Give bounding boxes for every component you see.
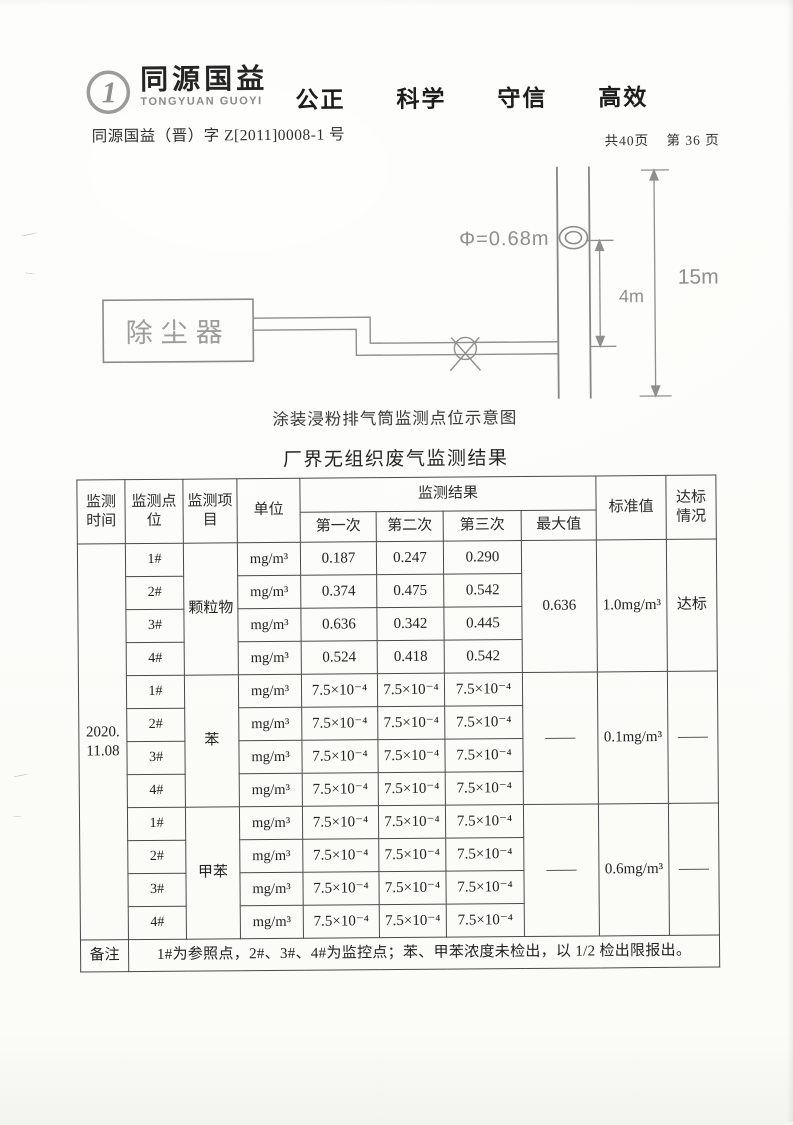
max-value-cell: ——	[522, 672, 598, 805]
duct-pipe	[253, 316, 558, 356]
stack-diameter-label: Φ=0.68m	[459, 228, 549, 251]
point-cell: 3#	[128, 873, 186, 906]
value-cell: 7.5×10⁻⁴	[302, 740, 378, 774]
page-total: 共40页	[605, 133, 650, 148]
monitoring-results-table: 监测时间 监测点位 监测项目 单位 监测结果 标准值 达标情况 第一次 第二次 …	[76, 475, 720, 973]
value-cell: 0.187	[300, 542, 376, 576]
point-cell: 4#	[126, 642, 184, 675]
header-point: 监测点位	[125, 479, 184, 543]
monitoring-date: 2020. 11.08	[77, 544, 128, 940]
scan-mark	[13, 816, 22, 818]
unit-cell: mg/m³	[238, 608, 301, 641]
svg-text:1: 1	[102, 76, 117, 109]
table-title: 厂界无组织废气监测结果	[0, 441, 792, 474]
port-height-label: 4m	[619, 286, 644, 306]
unit-cell: mg/m³	[239, 707, 302, 740]
value-cell: 7.5×10⁻⁴	[378, 739, 445, 773]
value-cell: 0.475	[377, 574, 444, 608]
value-cell: 7.5×10⁻⁴	[446, 904, 524, 938]
value-cell: 7.5×10⁻⁴	[302, 806, 378, 840]
diagram-caption: 涂装浸粉排气筒监测点位示意图	[272, 408, 517, 429]
company-logo-text: 同源国益 TONGYUAN GUOYI	[140, 65, 268, 108]
table-row: 2020. 11.08 1# 颗粒物 mg/m³ 0.187 0.247 0.2…	[77, 539, 716, 577]
note-text: 1#为参照点，2#、3#、4#为监控点；苯、甲苯浓度未检出，以 1/2 检出限报…	[128, 935, 719, 972]
company-name-cn: 同源国益	[140, 65, 268, 94]
value-cell: 7.5×10⁻⁴	[302, 707, 378, 741]
page-current: 第 36 页	[666, 132, 719, 147]
point-cell: 3#	[126, 609, 184, 642]
table-header-row-1: 监测时间 监测点位 监测项目 单位 监测结果 标准值 达标情况	[77, 475, 716, 514]
point-cell: 1#	[125, 543, 183, 576]
value-cell: 0.542	[444, 640, 522, 674]
standard-value-cell: 1.0mg/m³	[596, 539, 667, 672]
unit-cell: mg/m³	[239, 806, 302, 839]
point-cell: 4#	[127, 774, 185, 807]
header-max: 最大值	[521, 510, 596, 541]
header-unit: 单位	[237, 478, 301, 542]
slogan-4: 高效	[598, 78, 648, 112]
value-cell: 0.636	[301, 608, 377, 642]
item-benzene: 苯	[184, 675, 239, 807]
unit-cell: mg/m³	[240, 839, 303, 872]
slogan-row: 公正 科学 守信 高效	[295, 78, 648, 115]
stack-height-dimension	[638, 170, 672, 396]
note-label: 备注	[80, 940, 128, 972]
page-info: 共40页 第 36 页	[0, 128, 720, 154]
scan-mark	[14, 774, 28, 778]
value-cell: 0.342	[377, 607, 444, 641]
value-cell: 7.5×10⁻⁴	[446, 871, 524, 905]
value-cell: 0.290	[443, 541, 521, 575]
note-row: 备注 1#为参照点，2#、3#、4#为监控点；苯、甲苯浓度未检出，以 1/2 检…	[80, 935, 719, 972]
slogan-1: 公正	[295, 80, 345, 114]
unit-cell: mg/m³	[238, 674, 301, 707]
point-cell: 2#	[127, 708, 185, 741]
company-logo-icon: 1	[84, 68, 132, 116]
point-cell: 2#	[126, 576, 184, 609]
header-standard: 标准值	[596, 475, 667, 540]
value-cell: 7.5×10⁻⁴	[379, 838, 446, 872]
table-row: 1# 苯 mg/m³ 7.5×10⁻⁴ 7.5×10⁻⁴ 7.5×10⁻⁴ ——…	[78, 671, 717, 709]
value-cell: 7.5×10⁻⁴	[378, 805, 445, 839]
value-cell: 7.5×10⁻⁴	[378, 706, 445, 740]
standard-value-cell: 0.6mg/m³	[598, 803, 669, 936]
value-cell: 7.5×10⁻⁴	[446, 838, 524, 872]
point-cell: 4#	[128, 906, 186, 939]
max-value-cell: ——	[523, 804, 599, 937]
unit-cell: mg/m³	[238, 641, 301, 674]
standard-value-cell: 0.1mg/m³	[597, 671, 668, 804]
port-height-dimension	[587, 240, 616, 346]
compliance-cell: ——	[668, 803, 719, 935]
scanned-report-page: { "header": { "logo": { "glyph": "1", "n…	[0, 0, 793, 1122]
value-cell: 7.5×10⁻⁴	[445, 706, 523, 740]
point-cell: 2#	[128, 840, 186, 873]
stack-monitoring-diagram: 除尘器 Φ=0.68m	[0, 155, 792, 446]
value-cell: 7.5×10⁻⁴	[377, 673, 444, 707]
header-compliance: 达标情况	[666, 475, 717, 539]
header-run2: 第二次	[376, 511, 443, 542]
unit-cell: mg/m³	[240, 905, 303, 938]
header-item: 监测项目	[183, 479, 238, 543]
point-cell: 3#	[127, 741, 185, 774]
value-cell: 7.5×10⁻⁴	[301, 674, 377, 708]
value-cell: 7.5×10⁻⁴	[303, 905, 379, 939]
exhaust-stack	[557, 167, 591, 399]
value-cell: 7.5×10⁻⁴	[303, 839, 379, 873]
point-cell: 1#	[127, 807, 185, 840]
unit-cell: mg/m³	[239, 773, 302, 806]
slogan-3: 守信	[497, 79, 547, 113]
value-cell: 0.374	[301, 575, 377, 609]
value-cell: 7.5×10⁻⁴	[379, 871, 446, 905]
value-cell: 7.5×10⁻⁴	[445, 805, 523, 839]
value-cell: 7.5×10⁻⁴	[378, 772, 445, 806]
header-run3: 第三次	[443, 511, 521, 542]
value-cell: 7.5×10⁻⁴	[445, 739, 523, 773]
value-cell: 7.5×10⁻⁴	[303, 872, 379, 906]
header-run1: 第一次	[300, 512, 376, 543]
compliance-cell: ——	[667, 671, 718, 803]
max-value-cell: 0.636	[521, 540, 597, 673]
unit-cell: mg/m³	[240, 872, 303, 905]
header-results: 监测结果	[300, 476, 596, 512]
compliance-cell: 达标	[666, 539, 717, 671]
value-cell: 0.542	[444, 574, 522, 608]
table-row: 1# 甲苯 mg/m³ 7.5×10⁻⁴ 7.5×10⁻⁴ 7.5×10⁻⁴ —…	[79, 803, 718, 841]
value-cell: 0.418	[377, 640, 444, 674]
sampling-port-icon	[559, 227, 587, 249]
stack-height-label: 15m	[678, 265, 719, 288]
header-time: 监测时间	[77, 480, 126, 544]
page-background: 1 同源国益 TONGYUAN GUOYI 公正 科学 守信 高效 同源国益（晋…	[0, 0, 793, 1122]
item-particulate: 颗粒物	[183, 543, 238, 675]
dust-collector-label: 除尘器	[126, 317, 231, 348]
company-name-en: TONGYUAN GUOYI	[140, 96, 268, 108]
value-cell: 0.524	[301, 641, 377, 675]
page-content: 1 同源国益 TONGYUAN GUOYI 公正 科学 守信 高效 同源国益（晋…	[0, 0, 793, 1125]
slogan-2: 科学	[396, 80, 446, 114]
value-cell: 7.5×10⁻⁴	[302, 773, 378, 807]
unit-cell: mg/m³	[237, 542, 300, 575]
item-toluene: 甲苯	[185, 807, 240, 939]
unit-cell: mg/m³	[239, 740, 302, 773]
point-cell: 1#	[126, 675, 184, 708]
value-cell: 7.5×10⁻⁴	[445, 772, 523, 806]
unit-cell: mg/m³	[238, 575, 301, 608]
value-cell: 7.5×10⁻⁴	[444, 673, 522, 707]
value-cell: 0.247	[376, 541, 443, 575]
value-cell: 7.5×10⁻⁴	[379, 904, 446, 938]
value-cell: 0.445	[444, 607, 522, 641]
